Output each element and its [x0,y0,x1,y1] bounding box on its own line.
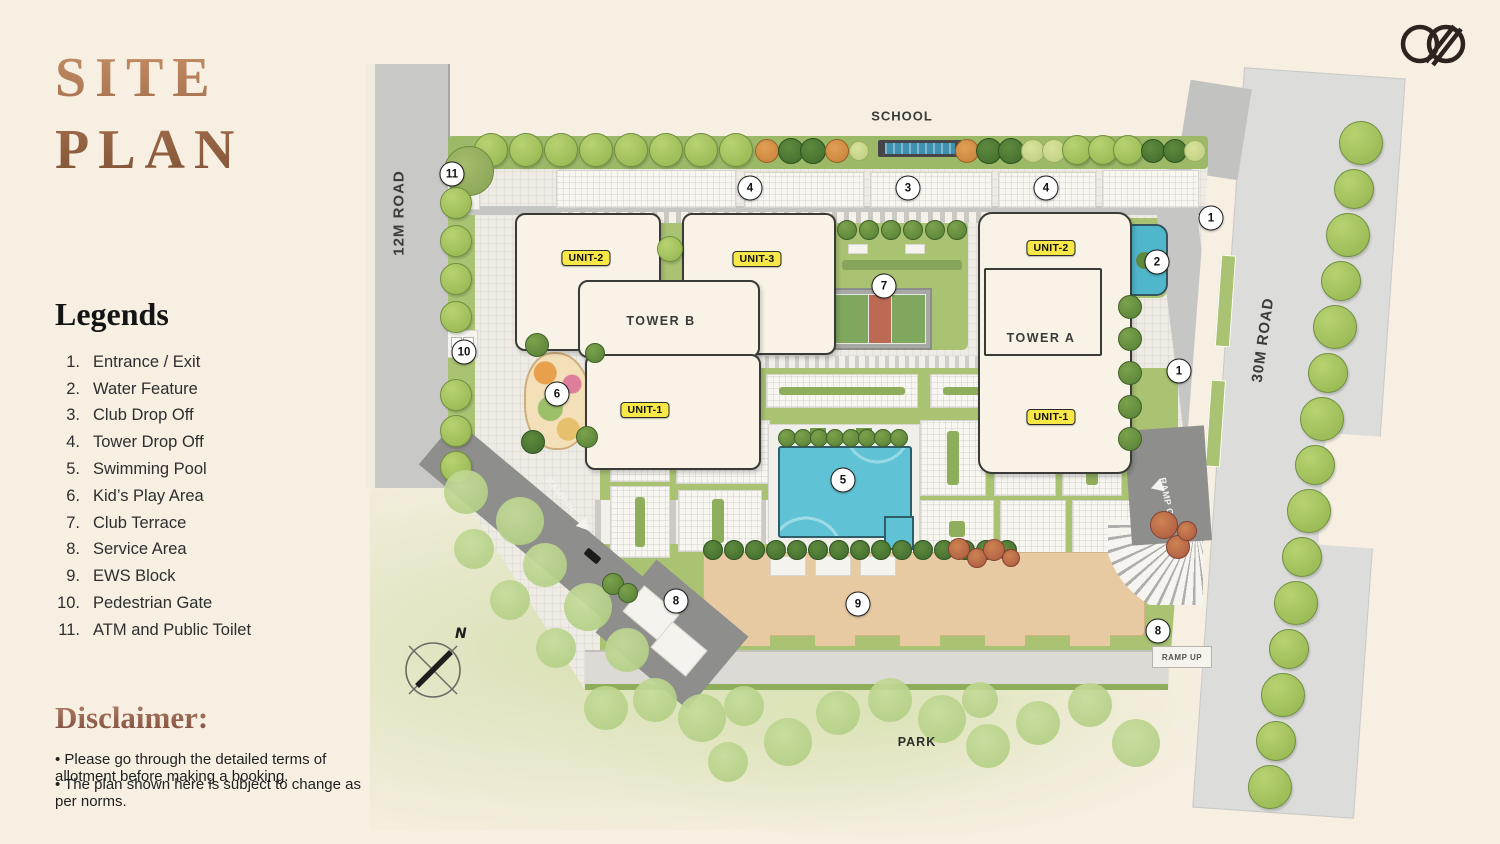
legend-item: 4.Tower Drop Off [50,429,251,456]
legends-heading: Legends [55,296,169,333]
bench [848,244,868,254]
school-buffer-green [448,136,1208,169]
tower-b-unit1-wing [585,354,761,470]
bench [905,244,925,254]
ews-entry [860,556,896,576]
garden-pad [678,490,762,552]
legend-item: 11.ATM and Public Toilet [50,617,251,644]
page-title-line2: PLAN [55,114,243,186]
ews-tab [985,630,1025,646]
marker-service-area: 8 [664,589,689,614]
legend-item: 10.Pedestrian Gate [50,590,251,617]
garden-pad [1000,500,1066,560]
planter [856,428,872,442]
legend-item: 9.EWS Block [50,563,251,590]
marker-kids-play-area: 6 [545,382,570,407]
left-info-panel: SITE PLAN Legends 1.Entrance / Exit 2.Wa… [0,0,370,844]
marker-tower-drop-off: 4 [738,176,763,201]
disclaimer-bullet: • The plan shown here is subject to chan… [55,776,370,810]
marker-entrance-exit: 1 [1199,206,1224,231]
marker-pedestrian-gate: 10 [452,340,477,365]
marker-entrance-exit: 1 [1167,359,1192,384]
kids-pool [884,516,914,550]
unit-badge: UNIT-2 [561,250,610,266]
unit-badge: UNIT-1 [620,402,669,418]
marker-service-area: 8 [1146,619,1171,644]
legend-item: 8.Service Area [50,537,251,564]
drop-off-pad [870,172,992,208]
svg-text:N: N [455,626,467,642]
disclaimer-heading: Disclaimer: [55,700,208,736]
brand-logo-icon [1396,20,1470,68]
tower-b-label: TOWER B [626,314,695,328]
garden-pad [920,500,994,560]
legend-item: 1.Entrance / Exit [50,349,251,376]
ramp-out-arrow-icon [1151,477,1167,492]
marker-swimming-pool: 5 [831,468,856,493]
marker-tower-drop-off: 4 [1034,176,1059,201]
road-12m [375,64,450,488]
school-label: SCHOOL [871,109,933,124]
ews-entry [770,556,806,576]
north-compass-icon: N [393,622,477,710]
legend-item: 2.Water Feature [50,376,251,403]
ramp-up-label: RAMP UP [1152,646,1212,668]
unit-badge: UNIT-2 [1026,240,1075,256]
road-12m-label: 12M ROAD [391,170,408,256]
road-30m-plot-notch [1318,433,1475,555]
drop-off-pad [556,170,736,208]
school-lap-pool-water [885,143,955,154]
page-title: SITE PLAN [55,42,243,186]
marker-water-feature: 2 [1145,250,1170,275]
ews-tab [815,630,855,646]
planter [810,428,826,442]
legend-item: 5.Swimming Pool [50,456,251,483]
garden-pad [610,486,670,558]
legend-list: 1.Entrance / Exit 2.Water Feature 3.Club… [50,349,251,644]
marker-club-terrace: 7 [872,274,897,299]
hedge-row [842,260,962,270]
marker-atm-public-toilet: 11 [440,162,465,187]
ews-entry [815,556,851,576]
marker-ews-block: 9 [846,592,871,617]
ews-tab [900,630,940,646]
legend-item: 6.Kid’s Play Area [50,483,251,510]
unit-badge: UNIT-1 [1026,409,1075,425]
ews-tab [1070,630,1110,646]
legend-item: 7.Club Terrace [50,510,251,537]
tower-a-label: TOWER A [1007,331,1076,345]
garden-pad [920,420,986,496]
planter-pad [766,374,918,408]
park-label: PARK [898,735,937,749]
drop-off-pad [1102,170,1199,208]
page-title-line1: SITE [55,42,243,114]
legend-item: 3.Club Drop Off [50,403,251,430]
school-lap-pool-frame [878,140,962,157]
unit-badge: UNIT-3 [732,251,781,267]
marker-club-drop-off: 3 [896,176,921,201]
